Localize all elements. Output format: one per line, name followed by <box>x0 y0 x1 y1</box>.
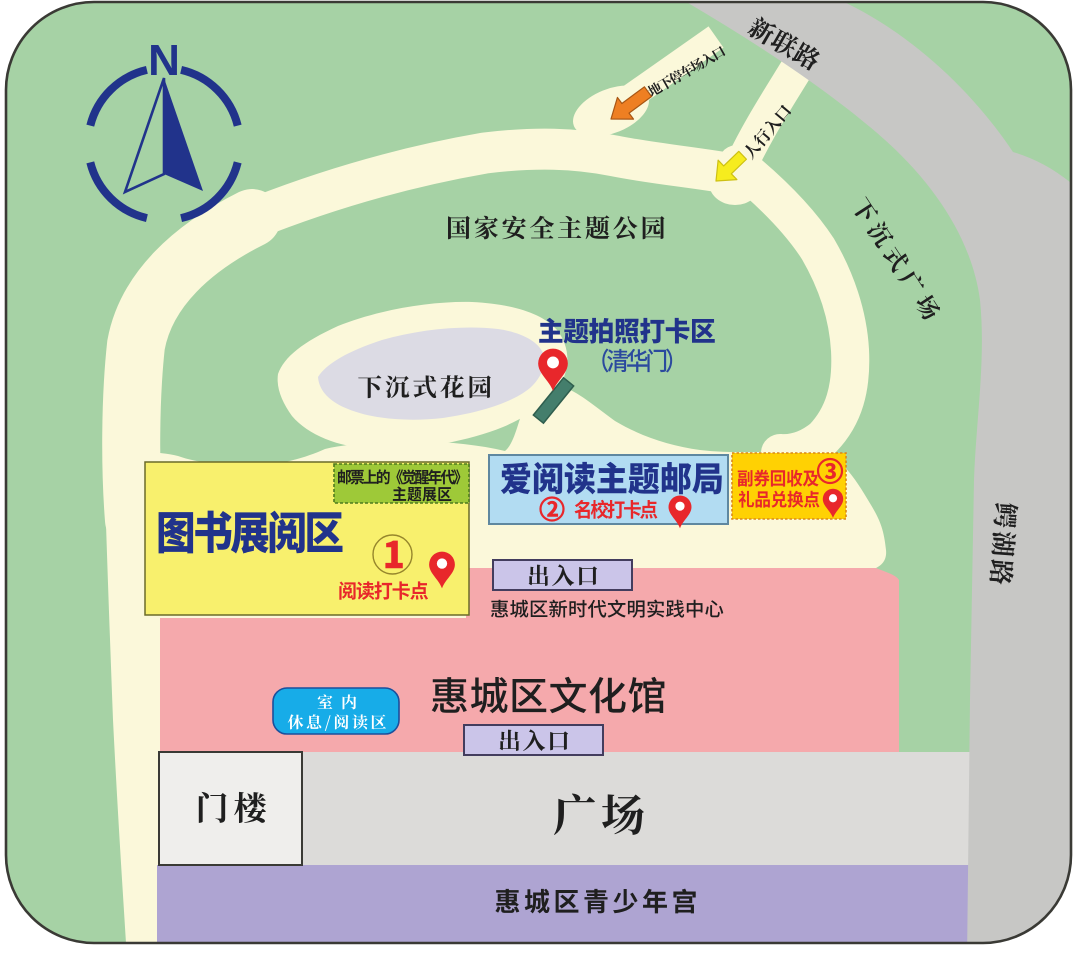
svg-text:N: N <box>148 36 180 85</box>
